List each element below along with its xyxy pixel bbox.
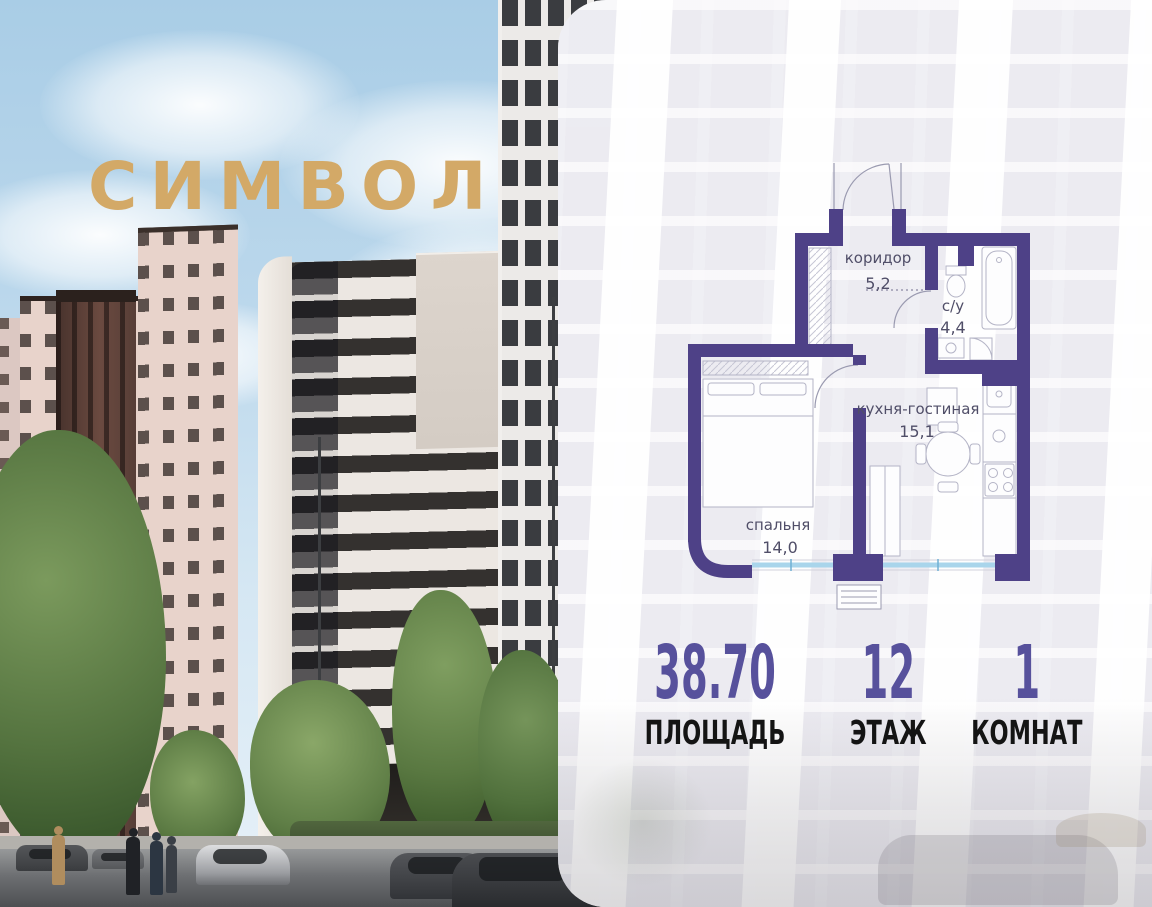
room-label-bathroom: с/у (942, 297, 964, 315)
stat-area: 38.70 ПЛОЩАДЬ (598, 640, 832, 749)
room-area-bedroom: 14,0 (762, 538, 798, 557)
room-area-corridor: 5,2 (865, 274, 890, 293)
faded-umbrella (1056, 813, 1146, 847)
area-value: 38.70 (654, 640, 776, 707)
pedestrian (150, 841, 163, 895)
floor-label: ЭТАЖ (850, 716, 927, 749)
details-panel: коридор 5,2 с/у 4,4 кухня-гостиная 15,1 … (558, 0, 1152, 907)
stats-row: 38.70 ПЛОЩАДЬ 12 ЭТАЖ 1 КОМНАТ (598, 640, 1070, 749)
pedestrian (52, 835, 65, 885)
room-label-kitchen-living: кухня-гостиная (857, 400, 980, 418)
room-area-kitchen-living: 15,1 (899, 422, 935, 441)
floor-plan-drawing (620, 148, 1070, 645)
project-logo: СИМВОЛ (88, 148, 496, 225)
room-area-bathroom: 4,4 (940, 318, 965, 337)
building-photo: СИМВОЛ (0, 0, 640, 907)
floor-plan: коридор 5,2 с/у 4,4 кухня-гостиная 15,1 … (620, 148, 1070, 645)
silver-sedan (196, 845, 290, 885)
room-label-corridor: коридор (845, 249, 912, 267)
apartment-listing-card[interactable]: СИМВОЛ (0, 0, 1152, 907)
floor-value: 12 (859, 640, 918, 707)
pedestrian (126, 837, 140, 895)
faded-tree (573, 757, 713, 887)
room-label-bedroom: спальня (746, 516, 811, 534)
pedestrian (166, 845, 177, 893)
stat-floor: 12 ЭТАЖ (832, 640, 945, 749)
rooms-label: КОМНАТ (971, 716, 1082, 749)
stat-rooms: 1 КОМНАТ (945, 640, 1109, 749)
rooms-value: 1 (984, 640, 1069, 707)
area-label: ПЛОЩАДЬ (635, 716, 794, 749)
